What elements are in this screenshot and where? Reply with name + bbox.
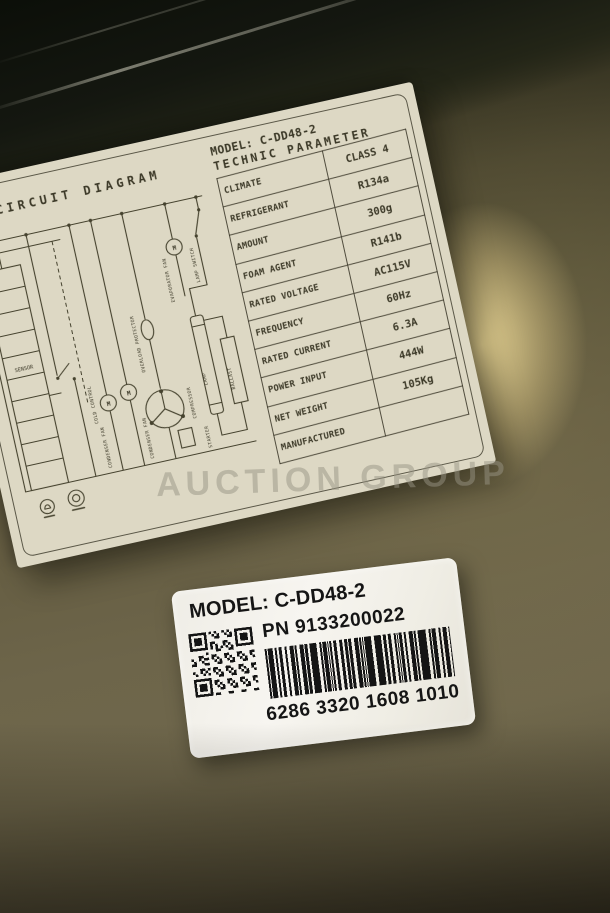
bottom-vignette	[0, 723, 610, 913]
qr-code-icon	[188, 627, 259, 698]
lamp-label: LAMP	[201, 372, 210, 386]
ballast-label: BALLAST	[227, 367, 238, 390]
overload-protector-label: OVERLOAD PROTECTOR	[129, 315, 147, 373]
condenser-fan-label: CONDENSER FAN	[99, 426, 114, 468]
motor-letter: M	[106, 401, 111, 409]
starter-label: STARTER	[204, 425, 215, 448]
photo-of-stainless-panel: CIRCUIT DIAGRAM SE	[0, 0, 610, 913]
motor-letter: M	[172, 245, 177, 253]
cold-control-label: COLD CONTROL	[86, 385, 100, 424]
lamp-switch-symbol	[188, 197, 215, 285]
condenser-fan-motor-icon	[61, 224, 131, 473]
compressor-label: COMPRESSOR	[186, 386, 199, 419]
condenser-fan-motor-icon	[83, 219, 153, 468]
terminal-block	[0, 235, 80, 491]
certification-mark-icon	[39, 498, 56, 518]
condenser-fan-label: CONDENSER FAN	[141, 417, 156, 459]
thermostat-symbol	[26, 231, 96, 480]
certification-mark-icon	[67, 489, 87, 511]
evaporator-fan-label: EVAPORATOR FAN	[161, 258, 177, 303]
sensor-label: SENSOR	[14, 364, 34, 374]
ballast-symbol	[204, 315, 248, 407]
motor-letter: M	[126, 390, 131, 398]
